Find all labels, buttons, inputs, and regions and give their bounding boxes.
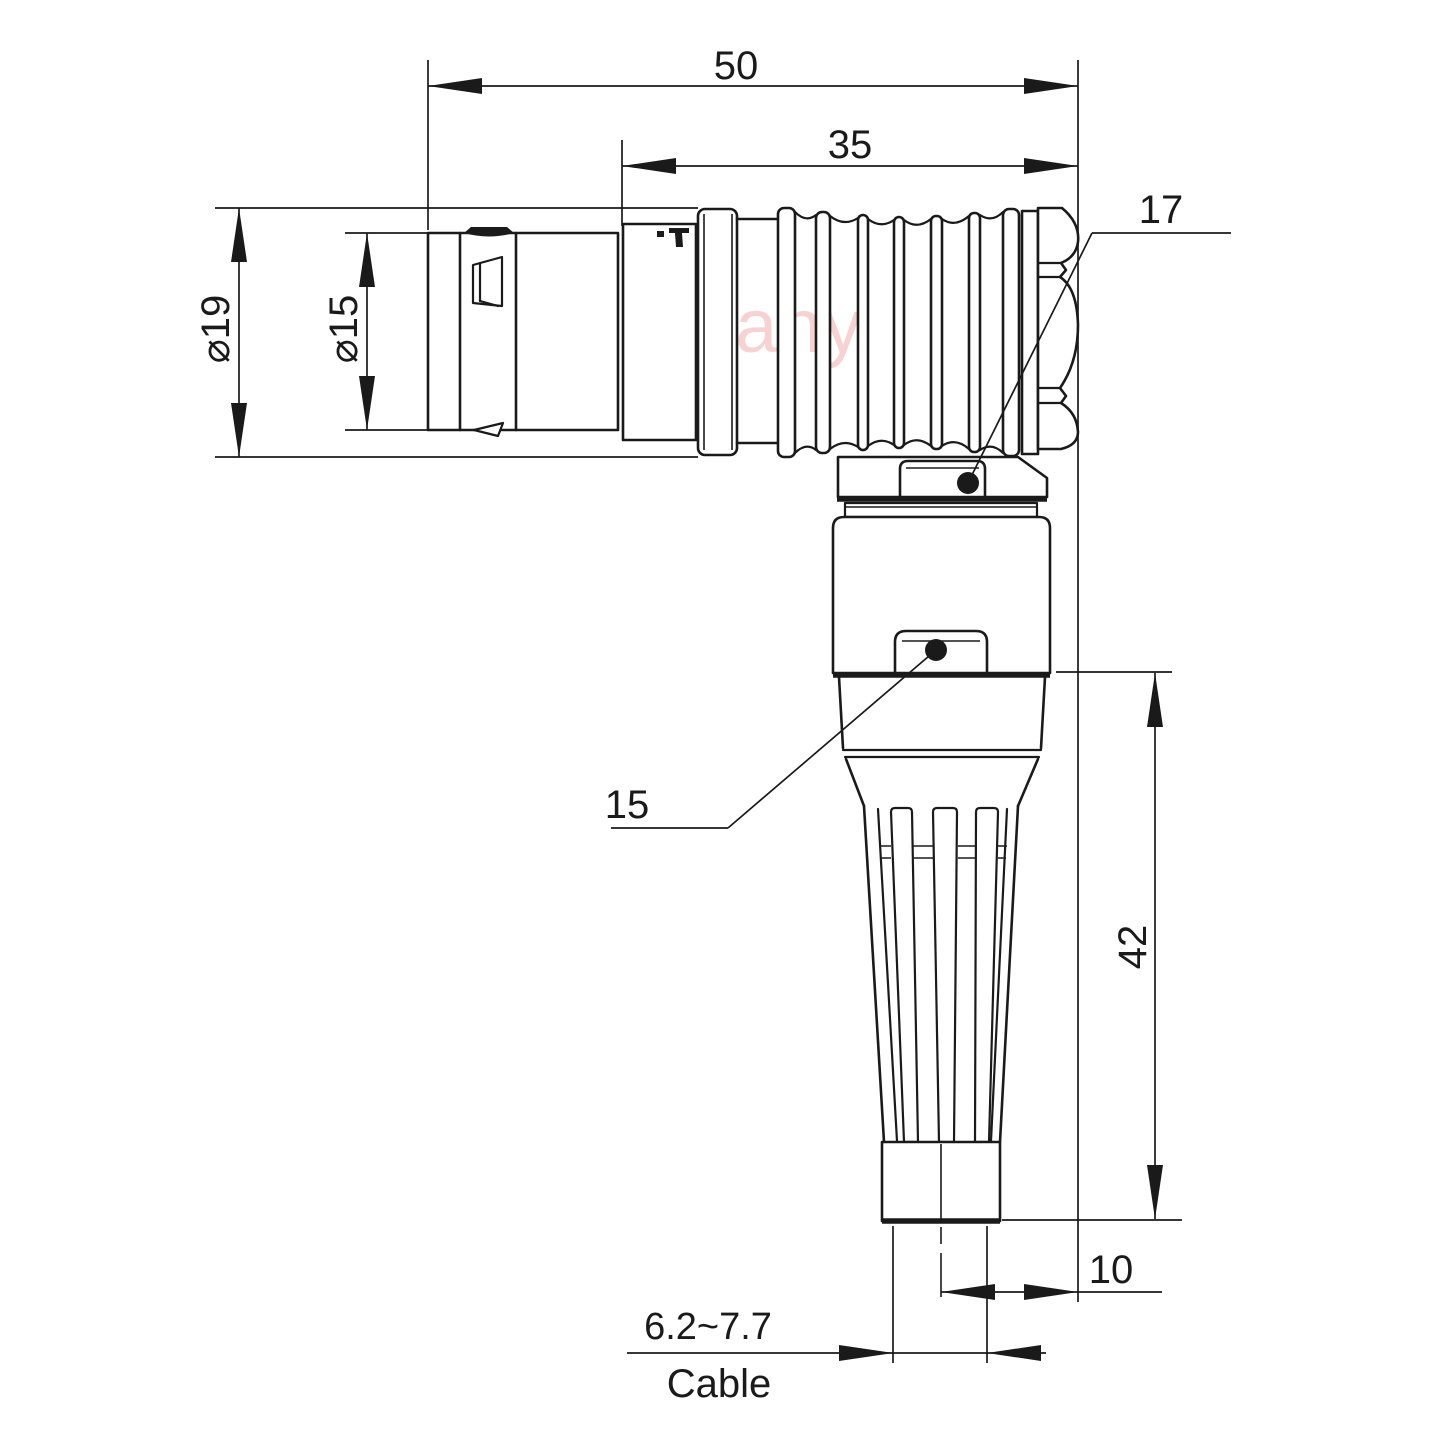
boot-rib <box>975 808 998 1142</box>
cone-taper <box>846 759 1038 806</box>
grip-end-band <box>1022 211 1038 454</box>
arrowhead-left <box>622 158 676 174</box>
callout-text-15: 15 <box>605 783 650 827</box>
dim-text-50: 50 <box>714 44 759 88</box>
barrel-outline <box>428 233 618 430</box>
grip-rib <box>858 215 868 450</box>
collar-outline <box>623 224 696 440</box>
arrowhead-right <box>1024 1284 1078 1300</box>
arrowhead-top <box>231 208 247 262</box>
dim-cable-range: 6.2~7.7 Cable <box>627 1226 1046 1406</box>
grip-rib <box>816 212 830 453</box>
arrowhead-right <box>1024 158 1078 174</box>
dim-axis-offset-10: 10 <box>941 1248 1162 1300</box>
arrowhead-top <box>359 233 375 287</box>
cone-transition <box>839 677 1045 806</box>
coupling-ring <box>698 209 737 455</box>
collar <box>623 224 696 440</box>
arrowhead-right <box>987 1345 1041 1361</box>
grip-rib <box>894 217 904 448</box>
grip-rib <box>931 216 942 449</box>
elbow-collar <box>837 457 1047 499</box>
keyway-window <box>473 257 502 306</box>
strain-relief-boot <box>864 806 1018 1142</box>
engraving-mark-dot <box>657 231 664 237</box>
arrowhead-bottom <box>231 403 247 457</box>
arrowhead-right <box>1024 78 1078 94</box>
leader-dot <box>957 472 979 494</box>
grip-rib <box>1003 209 1019 456</box>
dim-text-10: 10 <box>1089 1248 1134 1292</box>
arrowhead-bottom <box>1147 1165 1163 1219</box>
cable-caption: Cable <box>667 1362 772 1406</box>
arrowhead-top <box>1147 673 1163 727</box>
cone-groove-lines <box>843 750 1041 757</box>
dim-text-dia19: ⌀19 <box>194 295 238 364</box>
dim-mating-diameter-15: ⌀15 <box>322 233 428 430</box>
technical-drawing-page: Lightany <box>0 0 1440 1440</box>
dim-text-dia15: ⌀15 <box>322 295 366 364</box>
leader-line <box>728 650 936 828</box>
boot-rib <box>933 808 957 1142</box>
callout-text-17: 17 <box>1139 188 1184 232</box>
arrowhead-bottom <box>359 376 375 430</box>
dim-text-cable-range: 6.2~7.7 <box>644 1306 772 1348</box>
dim-vertical-length-42: 42 <box>1002 672 1182 1220</box>
leader-dot <box>925 639 947 661</box>
arrowhead-left <box>839 1345 893 1361</box>
front-barrel <box>428 227 618 436</box>
cable-ferrule <box>882 1142 1000 1297</box>
dim-text-35: 35 <box>828 123 873 167</box>
release-ring-outline <box>845 503 1037 517</box>
grip-rib <box>969 213 980 452</box>
cone-sides <box>839 677 1045 748</box>
release-ring <box>845 503 1037 517</box>
arrowhead-left <box>428 78 482 94</box>
dim-text-42: 42 <box>1111 925 1155 970</box>
grip-rib <box>778 208 795 457</box>
connector-technical-drawing: Lightany <box>0 0 1440 1440</box>
